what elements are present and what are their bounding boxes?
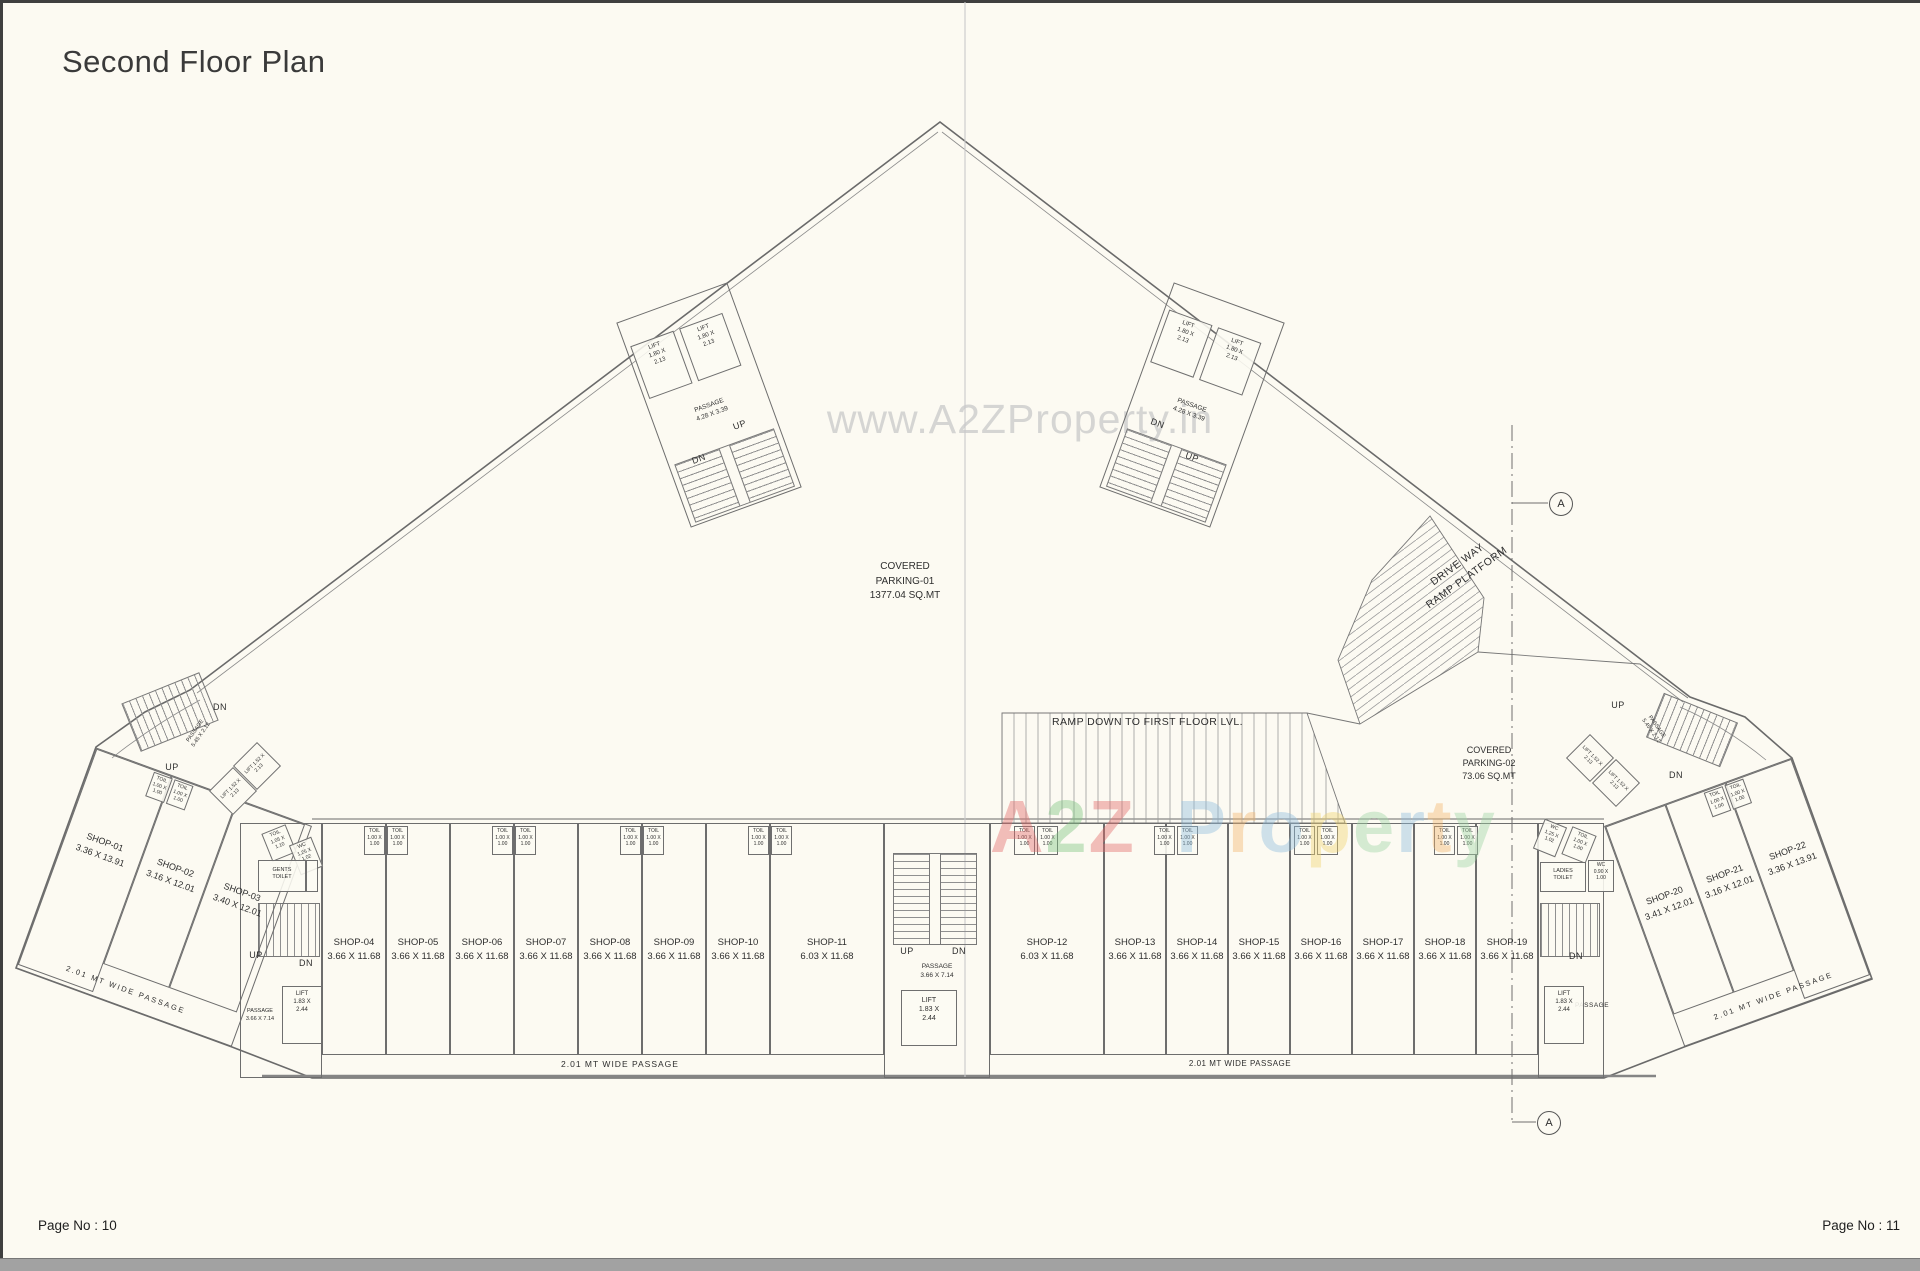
topright-lift-2: LIFT1.80 X2.13: [1199, 327, 1261, 395]
right-core-dn-label: DN: [1562, 951, 1590, 961]
topleft-up-label: UP: [725, 415, 755, 434]
shop-unit-6: SHOP-063.66 X 11.68: [450, 823, 514, 1055]
gents-toilet-box: GENTSTOILET: [258, 860, 306, 892]
centre-staircase: [893, 853, 977, 945]
section-marker-top: A: [1549, 492, 1573, 516]
page-number-right: Page No : 11: [1750, 1218, 1900, 1233]
centre-stair-dn-label: DN: [944, 946, 974, 956]
shop-unit-8: SHOP-083.66 X 11.68: [578, 823, 642, 1055]
ramp-down-label: RAMP DOWN TO FIRST FLOOR LVL.: [1040, 716, 1255, 728]
ladies-wc-box: WC0.90 X1.00: [1588, 860, 1614, 892]
ladies-toilet-box: LADIESTOILET: [1540, 862, 1586, 892]
left-core-lift: LIFT1.83 X2.44: [282, 986, 322, 1044]
section-marker-bottom: A: [1537, 1111, 1561, 1135]
toilet-box: TOIL1.00 X1.00: [492, 826, 513, 855]
plan-linework: [0, 0, 1920, 1271]
shop-unit-11: SHOP-116.03 X 11.68: [770, 823, 884, 1055]
toilet-box: TOIL1.00 X1.00: [364, 826, 385, 855]
left-core-dn-label: DN: [292, 958, 320, 968]
toilet-box: TOIL1.00 X1.00: [515, 826, 536, 855]
right-arc-up-label: UP: [1604, 700, 1632, 710]
left-arc-up-label: UP: [158, 762, 186, 772]
centre-lift: LIFT1.83 X2.44: [901, 990, 957, 1046]
centre-stair-up-label: UP: [892, 946, 922, 956]
toilet-box: TOIL1.00 X1.00: [620, 826, 641, 855]
centre-passage-label: PASSAGE3.66 X 7.14: [898, 962, 976, 980]
right-core-staircase: [1540, 903, 1600, 957]
floor-plan-page: www.A2ZProperty.in Second Floor Plan Pag…: [0, 0, 1920, 1271]
gents-wc-box: [306, 860, 318, 892]
shop-unit-4: SHOP-043.66 X 11.68: [322, 823, 386, 1055]
shop-unit-7: SHOP-073.66 X 11.68: [514, 823, 578, 1055]
topright-dn-label: DN: [1143, 414, 1173, 433]
left-core-up-label: UP: [242, 950, 270, 960]
shop-unit-10: SHOP-103.66 X 11.68: [706, 823, 770, 1055]
shop-unit-9: SHOP-093.66 X 11.68: [642, 823, 706, 1055]
shop-unit-5: SHOP-053.66 X 11.68: [386, 823, 450, 1055]
right-arc-dn-label: DN: [1662, 770, 1690, 780]
bottom-passage-label-right: 2.01 MT WIDE PASSAGE: [1125, 1059, 1355, 1068]
watermark-brand: A2Z Property: [990, 784, 1497, 869]
covered-parking-1-label: COVEREDPARKING-011377.04 SQ.MT: [845, 560, 965, 604]
toilet-box: TOIL1.00 X1.00: [643, 826, 664, 855]
bottom-passage-label-left: 2.01 MT WIDE PASSAGE: [505, 1059, 735, 1069]
page-number-left: Page No : 10: [38, 1218, 198, 1233]
right-core-lift: LIFT1.83 X2.44: [1544, 986, 1584, 1044]
toilet-box: TOIL1.00 X1.00: [748, 826, 769, 855]
left-core-passage-label: PASSAGE3.66 X 7.14: [232, 1008, 288, 1023]
toilet-box: TOIL1.00 X1.00: [387, 826, 408, 855]
page-title: Second Floor Plan: [62, 44, 482, 80]
toilet-box: TOIL1.00 X1.00: [771, 826, 792, 855]
covered-parking-2-label: COVEREDPARKING-0273.06 SQ.MT: [1443, 744, 1535, 783]
